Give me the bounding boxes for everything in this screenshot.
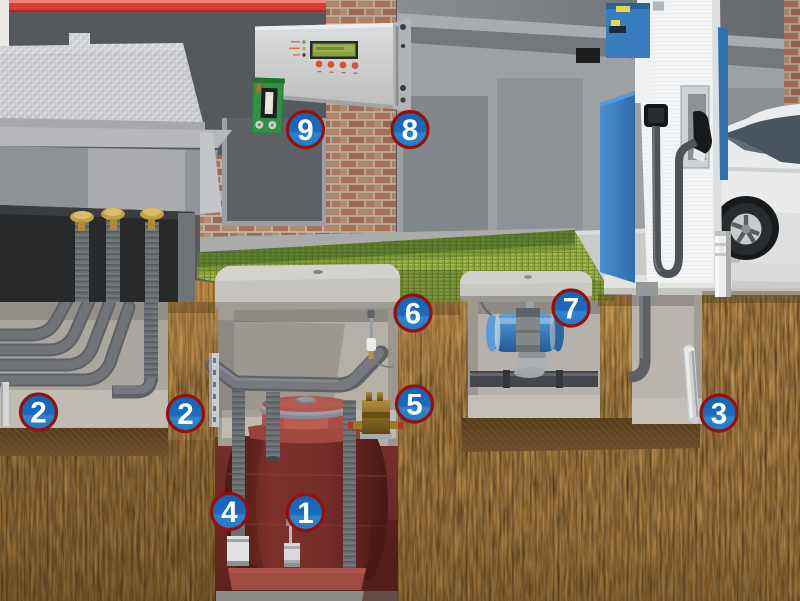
svg-text:7: 7 xyxy=(563,293,579,326)
svg-text:9: 9 xyxy=(297,114,313,147)
svg-text:4: 4 xyxy=(221,496,238,529)
svg-text:2: 2 xyxy=(177,398,193,431)
svg-text:6: 6 xyxy=(405,298,421,331)
svg-text:1: 1 xyxy=(297,497,313,530)
svg-text:3: 3 xyxy=(711,398,727,431)
svg-text:8: 8 xyxy=(402,114,418,147)
svg-text:2: 2 xyxy=(30,397,46,430)
svg-text:5: 5 xyxy=(406,389,422,422)
